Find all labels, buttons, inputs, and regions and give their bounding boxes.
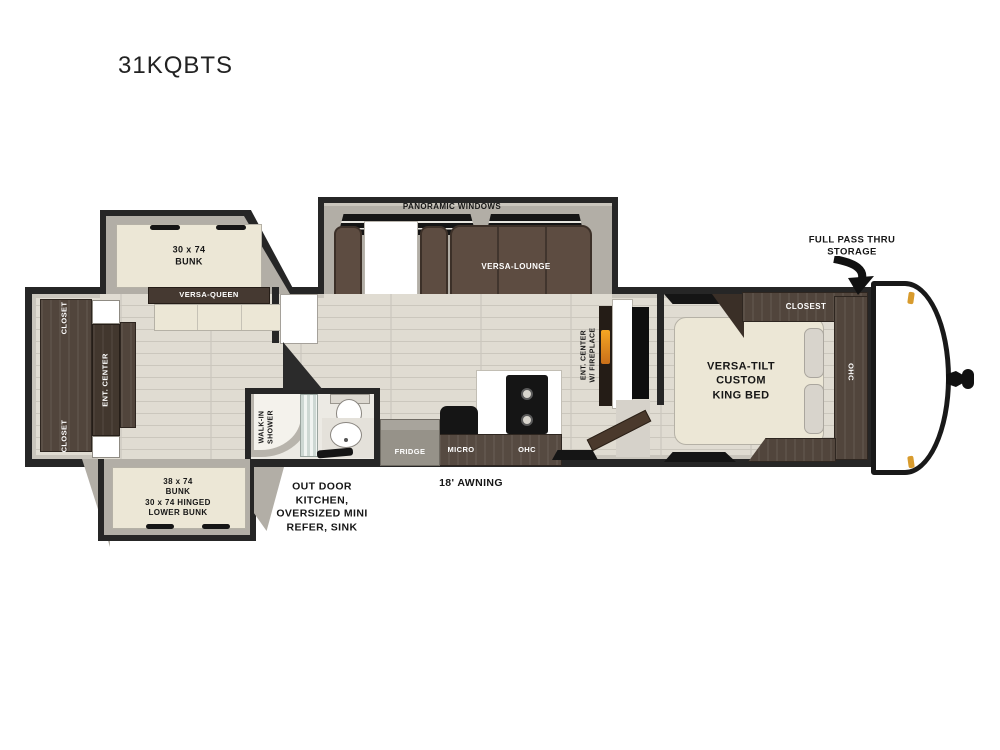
model-title: 31KQBTS	[118, 52, 233, 80]
micro-label: MICRO	[448, 445, 475, 455]
bunk-top-label: 30 x 74 BUNK	[173, 244, 206, 267]
storage-arrow-icon	[828, 256, 880, 296]
bunk-top-headrail-left	[150, 225, 180, 230]
bunkroom-speaker-bottom	[92, 436, 120, 458]
fireplace-glow	[601, 330, 610, 364]
ohc-bedroom-label: OHC	[846, 363, 855, 381]
awning-label: 18' AWNING	[439, 477, 503, 491]
bunkroom-door-panel	[280, 294, 318, 344]
lining-top-1	[32, 294, 100, 298]
floorplan: 31KQBTS PANORAMIC WINDOWS VERSA-LOUNGE 3…	[0, 0, 1000, 750]
bedroom-window-bottom	[664, 452, 736, 462]
ent-center-label: ENT. CENTER	[100, 353, 109, 407]
bath-sink	[330, 422, 362, 448]
ent-center-console	[612, 299, 633, 409]
bedroom-closet-label: CLOSEST	[786, 302, 827, 312]
lining-bottom-1	[32, 455, 98, 459]
bunk-bottom-rail-left	[146, 524, 174, 529]
hitch-ball	[962, 369, 974, 389]
lining-rear	[32, 294, 36, 459]
closet-bottom-label: CLOSET	[59, 420, 68, 453]
sink-drain	[344, 438, 348, 442]
versa-queen-bed	[154, 304, 284, 331]
outdoor-kitchen-label: OUT DOOR KITCHEN, OVERSIZED MINI REFER, …	[276, 481, 367, 536]
pillow-1	[804, 328, 824, 378]
entry-door-swing	[552, 450, 598, 460]
versa-lounge-label: VERSA-LOUNGE	[481, 262, 550, 272]
fridge	[380, 419, 440, 466]
bunk-top-headrail-right	[216, 225, 246, 230]
microwave	[440, 406, 478, 437]
bunk-bottom-rail-right	[202, 524, 230, 529]
king-bed-label: VERSA-TILT CUSTOM KING BED	[707, 360, 775, 403]
wall-bedroom-divider	[657, 287, 664, 405]
ohc-kitchen-label: OHC	[518, 445, 536, 455]
closet-top-label: CLOSET	[59, 302, 68, 335]
walk-in-shower-label: WALK-IN SHOWER	[258, 410, 276, 444]
ent-center-fireplace-label: ENT. CENTER W/ FIREPLACE	[580, 328, 598, 383]
burner-1	[521, 388, 533, 400]
burner-2	[521, 414, 533, 426]
pillow-2	[804, 384, 824, 434]
bunkroom-speaker-top	[92, 300, 120, 324]
dinette-table	[364, 221, 418, 303]
shower-glass-door	[300, 394, 318, 457]
panoramic-windows-label: PANORAMIC WINDOWS	[403, 202, 501, 212]
front-cap	[871, 281, 951, 475]
bunk-bottom-label: 38 x 74 BUNK 30 x 74 HINGED LOWER BUNK	[145, 477, 211, 519]
versa-queen-label: VERSA-QUEEN	[179, 290, 238, 300]
wall-rear	[25, 287, 32, 467]
tv-panel	[632, 307, 649, 399]
fridge-label: FRIDGE	[395, 447, 426, 457]
wall-top-2	[292, 287, 324, 294]
wall-top-1	[25, 287, 100, 294]
bunkroom-side-panel	[120, 322, 136, 428]
